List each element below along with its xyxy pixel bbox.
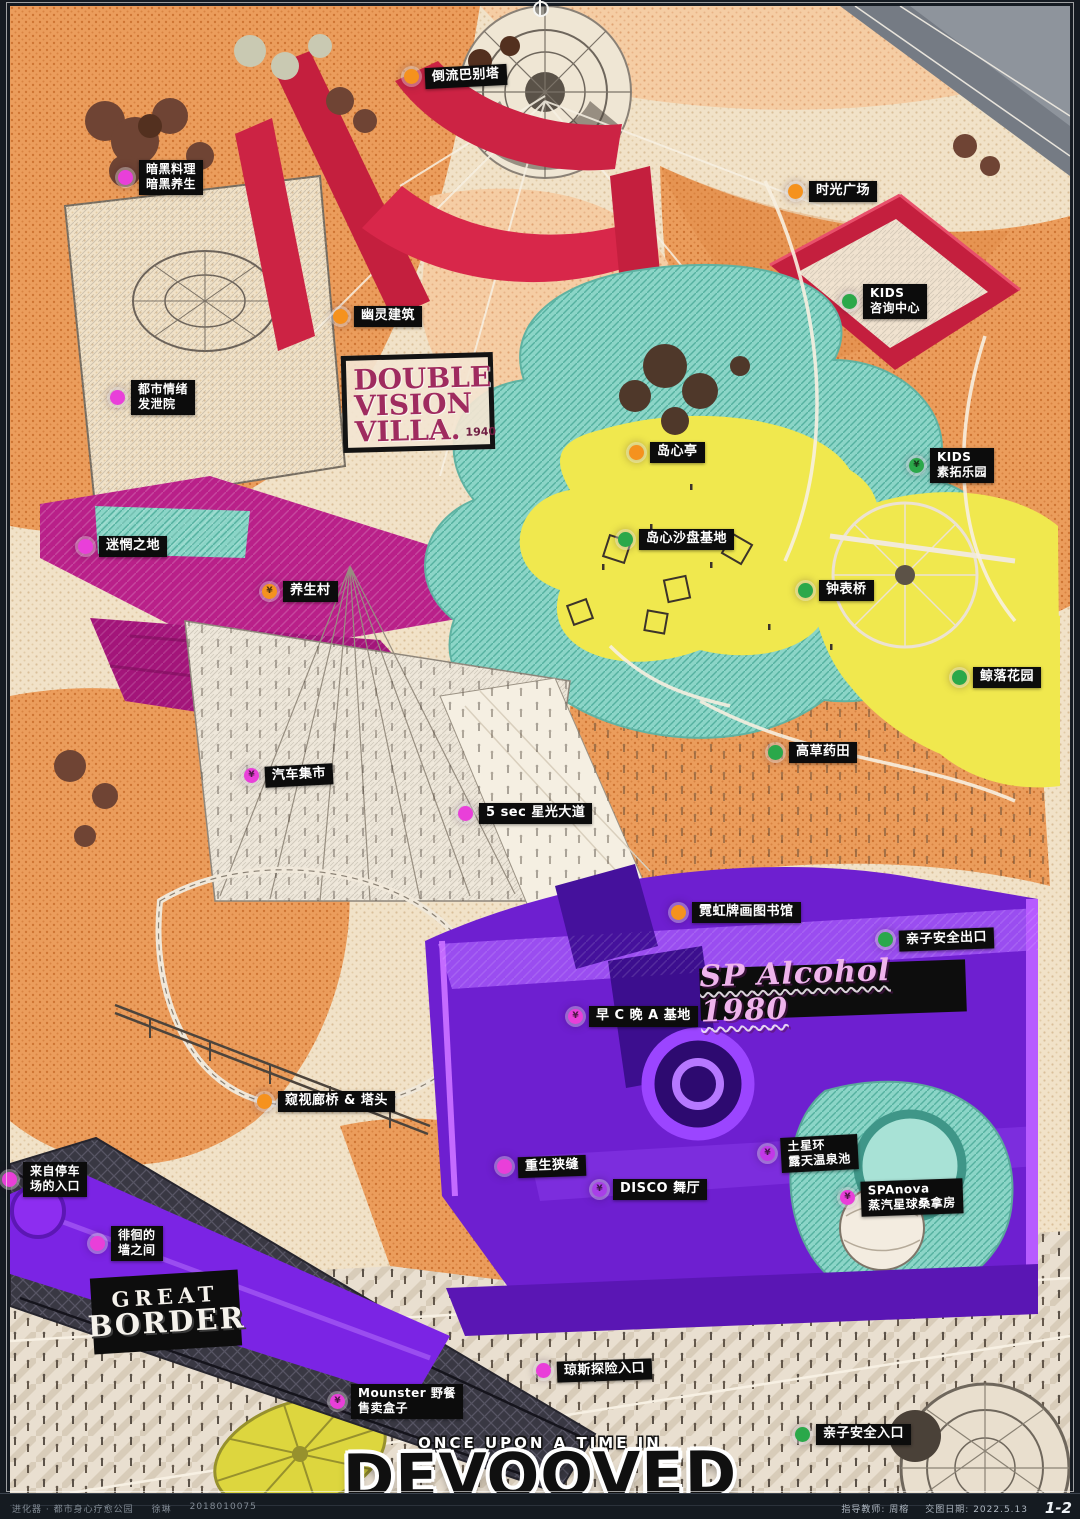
poi-parking-lot-entrance: 来自停车 场的入口: [2, 1162, 87, 1197]
poi-dot: [536, 1363, 551, 1378]
poi-label: 迷惘之地: [99, 536, 167, 557]
poi-lost-land: 迷惘之地: [78, 536, 167, 557]
footer-info-bar: 进化器 · 都市身心疗愈公园 徐琳 2018010075 指导教师: 周榕 交图…: [0, 1493, 1080, 1519]
registration-mark: [533, 1, 549, 17]
poi-label: 琼斯探险入口: [557, 1358, 653, 1383]
poi-label: 岛心亭: [650, 442, 705, 463]
poi-emotion-vent-house: 都市情绪 发泄院: [110, 380, 195, 415]
poi-dot: [618, 532, 633, 547]
student-id: 2018010075: [190, 1502, 257, 1515]
poi-island-sandbox-base: 岛心沙盘基地: [618, 529, 734, 550]
poi-label: 徘徊的 墙之间: [111, 1226, 163, 1261]
poi-dot: [795, 1427, 810, 1442]
poi-wellness-village: ¥ 养生村: [262, 581, 338, 602]
poi-dot: [458, 806, 473, 821]
poi-dot: ¥: [909, 458, 924, 473]
poi-car-market: ¥ 汽车集市: [244, 765, 333, 786]
poi-jones-adventure-entrance: 琼斯探险入口: [536, 1360, 652, 1381]
author-name: 徐琳: [152, 1502, 172, 1515]
masterplan-poster: 倒流巴别塔 暗黑料理 暗黑养生 时光广场 幽灵建筑 KIDS 咨询中心 都市情绪…: [0, 0, 1080, 1519]
poi-family-safe-exit: 亲子安全出口: [878, 929, 994, 950]
poi-island-pavilion: 岛心亭: [629, 442, 705, 463]
poi-label: 窥视廊桥 & 塔头: [278, 1091, 395, 1112]
poi-label: 重生狭缝: [518, 1155, 587, 1179]
poi-label: 来自停车 场的入口: [23, 1162, 87, 1197]
poi-family-safe-entrance: 亲子安全入口: [795, 1424, 911, 1445]
logo-line: VILLA.: [354, 416, 460, 445]
poi-tall-grass-herb-field: 高草药田: [768, 742, 857, 763]
poi-dot: [768, 745, 783, 760]
poi-label: 鲸落花园: [973, 667, 1041, 688]
poi-dot: ¥: [592, 1182, 607, 1197]
great-border-logo: GREAT BORDER: [90, 1270, 242, 1355]
poi-label: 土星环 露天温泉池: [780, 1134, 858, 1173]
poi-ghost-building: 幽灵建筑: [333, 306, 422, 327]
poi-dot: [404, 69, 419, 84]
poi-dark-cuisine-wellness: 暗黑料理 暗黑养生: [118, 160, 203, 195]
poi-wandering-walls: 徘徊的 墙之间: [90, 1226, 163, 1261]
poi-starlight-avenue: 5 sec 星光大道: [458, 803, 592, 824]
poi-whalefall-garden: 鲸落花园: [952, 667, 1041, 688]
poi-label: 倒流巴别塔: [424, 64, 507, 89]
poi-label: 汽车集市: [264, 763, 333, 788]
poi-label: 早 C 晚 A 基地: [589, 1006, 698, 1027]
poi-label: 钟表桥: [819, 580, 874, 601]
poi-dot: [333, 309, 348, 324]
poi-dot: [118, 170, 133, 185]
poi-neon-sign-library: 霓虹牌画图书馆: [671, 902, 801, 923]
submit-date: 交图日期: 2022.5.13: [925, 1502, 1028, 1515]
poi-label: DISCO 舞厅: [613, 1179, 707, 1200]
poi-dot: ¥: [568, 1009, 583, 1024]
poi-dot: ¥: [760, 1146, 775, 1161]
poi-dot: [798, 583, 813, 598]
poi-label: 亲子安全出口: [899, 927, 995, 952]
poi-mounster-picnic-kiosk: ¥ Mounster 野餐 售卖盒子: [330, 1384, 463, 1419]
poi-kids-adventure-park: ¥ KIDS 素拓乐园: [909, 448, 994, 483]
poi-label: 亲子安全入口: [816, 1424, 911, 1445]
poi-label: 暗黑料理 暗黑养生: [139, 160, 203, 195]
logo-text: SP Alcohol 1980: [699, 950, 967, 1029]
poi-label: Mounster 野餐 售卖盒子: [351, 1384, 463, 1419]
poi-label: 岛心沙盘基地: [639, 529, 734, 550]
project-name: 进化器 · 都市身心疗愈公园: [12, 1502, 134, 1515]
poi-time-plaza: 时光广场: [788, 181, 877, 202]
poi-label: 时光广场: [809, 181, 877, 202]
poi-label: 幽灵建筑: [354, 306, 422, 327]
poi-label: 养生村: [283, 581, 338, 602]
poi-dot: [878, 932, 893, 947]
poi-label: 霓虹牌画图书馆: [692, 902, 801, 923]
poi-dot: [497, 1159, 512, 1174]
poi-dot: ¥: [330, 1394, 345, 1409]
poi-dot: [2, 1172, 17, 1187]
poi-peep-gallery-bridge: 窥视廊桥 & 塔头: [257, 1091, 395, 1112]
poi-reverse-babel-tower: 倒流巴别塔: [404, 66, 507, 87]
poi-kids-info-center: KIDS 咨询中心: [842, 284, 927, 319]
poi-saturn-ring-hot-spring: ¥ 土星环 露天温泉池: [760, 1136, 858, 1171]
poi-label: SPAnova 蒸汽星球桑拿房: [860, 1178, 963, 1217]
double-vision-villa-logo: DOUBLE VISION VILLA. 1940: [341, 352, 495, 453]
poi-label: KIDS 咨询中心: [863, 284, 927, 319]
poi-dot: [788, 184, 803, 199]
poi-dot: [952, 670, 967, 685]
poi-dot: ¥: [840, 1190, 855, 1205]
poi-label: 高草药田: [789, 742, 857, 763]
logo-year: 1940: [465, 425, 496, 442]
poi-disco-hall: ¥ DISCO 舞厅: [592, 1179, 707, 1200]
poi-dot: [629, 445, 644, 460]
poi-morning-c-night-a-base: ¥ 早 C 晚 A 基地: [568, 1006, 698, 1027]
poi-dot: ¥: [244, 768, 259, 783]
poi-label: 都市情绪 发泄院: [131, 380, 195, 415]
poi-dot: [78, 539, 93, 554]
page-number: 1-2: [1045, 1499, 1072, 1517]
poi-dot: [90, 1236, 105, 1251]
poi-dot: [110, 390, 125, 405]
sp-alcohol-1980-logo: SP Alcohol 1980: [699, 959, 967, 1020]
poi-clock-bridge: 钟表桥: [798, 580, 874, 601]
advisor: 指导教师: 周榕: [841, 1502, 909, 1515]
poi-dot: [257, 1094, 272, 1109]
poi-spanova-sauna: ¥ SPAnova 蒸汽星球桑拿房: [840, 1180, 963, 1215]
poi-dot: [671, 905, 686, 920]
park-map-illustration: [10, 6, 1070, 1493]
poi-label: 5 sec 星光大道: [479, 803, 592, 824]
poi-rebirth-crevice: 重生狭缝: [497, 1156, 586, 1177]
logo-line: BORDER: [87, 1302, 246, 1342]
poi-dot: ¥: [262, 584, 277, 599]
map-artwork: [10, 6, 1070, 1493]
poi-dot: [842, 294, 857, 309]
poi-label: KIDS 素拓乐园: [930, 448, 994, 483]
